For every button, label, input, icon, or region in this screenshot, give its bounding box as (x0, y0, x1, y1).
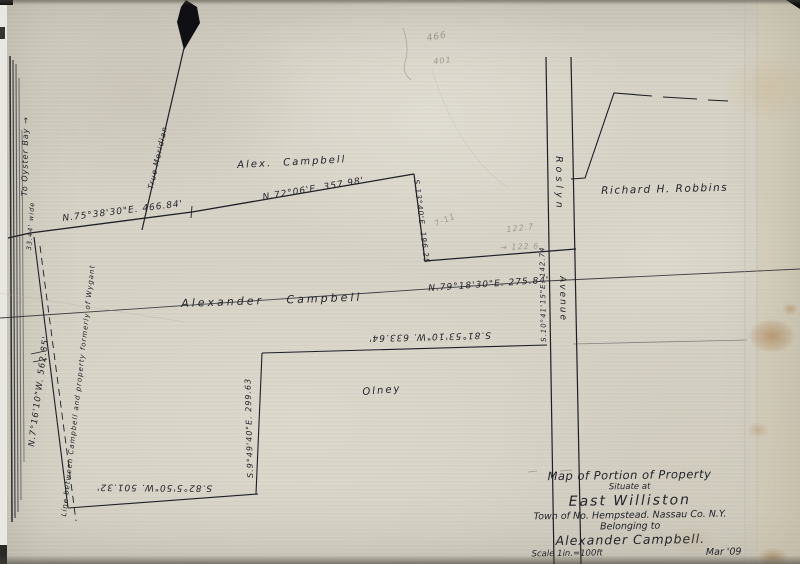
bearing-avenue-frontage: S.10°41'15"E. 142.74 (538, 246, 548, 342)
pencil-122-6: → 122 6 (500, 242, 539, 252)
label-avenue: Avenue (557, 276, 568, 322)
boundary-tick (191, 206, 192, 218)
south-mid-extension-line (573, 340, 747, 344)
bearing-south: S.82°5'50"W. 501.32' (96, 481, 212, 492)
pencil-401: 401 (433, 55, 452, 66)
edge-mark-left (0, 27, 5, 39)
southeast-boundary-line (256, 353, 262, 494)
top-edge-shadow (0, 0, 800, 5)
label-roslyn: Roslyn (553, 156, 564, 212)
long-cross-boundary-line (0, 269, 800, 318)
label-to-oyster-bay: To Oyster Bay → (20, 116, 30, 196)
survey-map-scan: Alex. Campbell Alexander Campbell Olney … (0, 0, 800, 564)
pencil-sketch-curve (432, 70, 508, 188)
title-block: Map of Portion of Property Situate at Ea… (504, 466, 755, 560)
robbins-boundary-dash-1 (663, 97, 697, 99)
north-arrow-icon (177, 0, 200, 50)
south-boundary-line (68, 494, 258, 508)
robbins-boundary-dash-2 (708, 100, 728, 101)
south-mid-boundary-line (262, 345, 547, 353)
robbins-boundary-line (571, 93, 652, 179)
bottom-edge-shadow (0, 555, 800, 564)
pencil-squiggle (403, 28, 411, 80)
